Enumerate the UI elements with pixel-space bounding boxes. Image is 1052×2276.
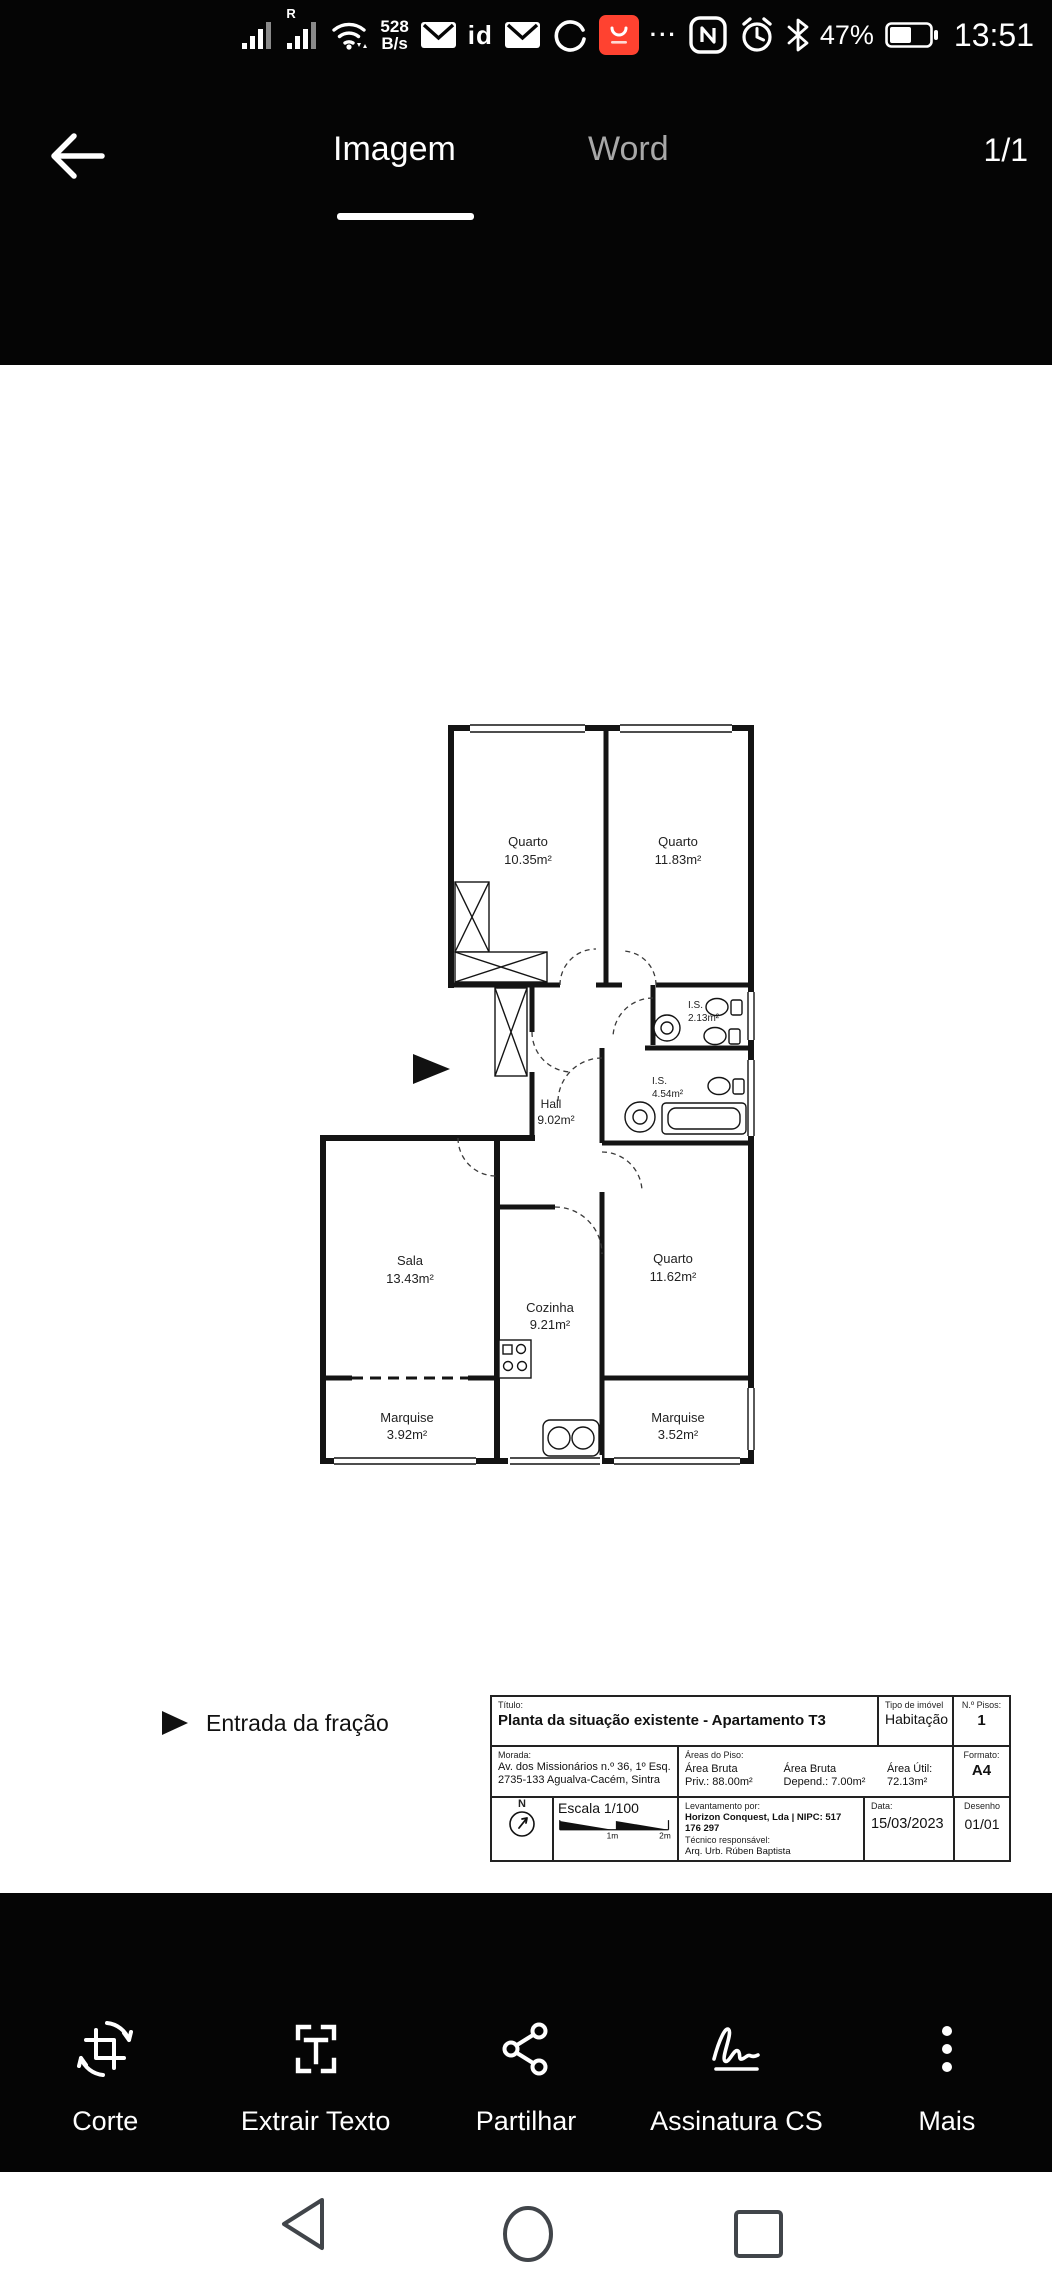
room-area: 3.52m² bbox=[658, 1427, 699, 1442]
room-label: Marquise bbox=[651, 1410, 704, 1425]
nfc-icon bbox=[689, 16, 727, 54]
carrier-indicator: R bbox=[286, 6, 295, 21]
back-button[interactable] bbox=[46, 130, 108, 187]
area-bruta-priv-l2: Priv.: 88.00m² bbox=[685, 1776, 774, 1789]
data-value: 15/03/2023 bbox=[871, 1816, 947, 1832]
entrance-legend-label: Entrada da fração bbox=[206, 1710, 389, 1737]
formato-label: Formato: bbox=[960, 1750, 1003, 1761]
room-area: 11.83m² bbox=[655, 852, 702, 867]
network-speed: 528 B/s bbox=[380, 18, 408, 52]
pisos-label: N.º Pisos: bbox=[960, 1700, 1003, 1711]
title-block: Título: Planta da situação existente - A… bbox=[490, 1695, 1011, 1862]
battery-percent: 47% bbox=[820, 20, 874, 51]
area-bruta-priv-l1: Área Bruta bbox=[685, 1763, 774, 1776]
room-label: Quarto bbox=[658, 834, 698, 849]
mail-icon bbox=[420, 21, 457, 49]
mail-icon-2 bbox=[504, 21, 541, 49]
desenho-value: 01/01 bbox=[961, 1816, 1003, 1832]
morada-line1: Av. dos Missionários n.º 36, 1º Esq. bbox=[498, 1761, 671, 1774]
entrance-triangle-icon bbox=[158, 1707, 190, 1739]
title-block-row-3: N Escala 1/100 1m 2m Levantamento por: bbox=[492, 1798, 1009, 1861]
north-label: N bbox=[493, 1799, 551, 1810]
more-vertical-icon bbox=[916, 2018, 978, 2080]
nav-home-button[interactable] bbox=[505, 2208, 551, 2260]
wardrobes bbox=[455, 882, 547, 1076]
nav-recents-button[interactable] bbox=[736, 2212, 781, 2256]
morada-line2: 2735-133 Agualva-Cacém, Sintra bbox=[498, 1774, 671, 1787]
page-indicator: 1/1 bbox=[984, 132, 1028, 169]
tecnico-value: Arq. Urb. Rúben Baptista bbox=[685, 1846, 857, 1858]
extract-text-icon bbox=[285, 2018, 347, 2080]
room-area: 9.02m² bbox=[537, 1113, 574, 1127]
app-screen: R 528 B/s id ··· 4 bbox=[0, 0, 1052, 2276]
share-label: Partilhar bbox=[476, 2106, 577, 2137]
desenho-label: Desenho bbox=[961, 1801, 1003, 1812]
wifi-icon bbox=[331, 19, 369, 51]
overflow-dots-icon: ··· bbox=[650, 22, 678, 48]
titulo-cell: Título: Planta da situação existente - A… bbox=[492, 1697, 879, 1745]
tab-word[interactable]: Word bbox=[588, 130, 669, 169]
escala-cell: Escala 1/100 1m 2m bbox=[554, 1798, 679, 1861]
levantamento-cell: Levantamento por: Horizon Conquest, Lda … bbox=[679, 1798, 865, 1861]
area-util-l1: Área Útil: bbox=[887, 1763, 946, 1776]
areas-cell: Áreas do Piso: Área Bruta Priv.: 88.00m²… bbox=[679, 1747, 954, 1795]
data-cell: Data: 15/03/2023 bbox=[865, 1798, 955, 1861]
areas-label: Áreas do Piso: bbox=[685, 1750, 946, 1761]
tecnico-label: Técnico responsável: bbox=[685, 1835, 857, 1846]
scale-2m-label: 2m bbox=[659, 1830, 671, 1839]
room-area: 4.54m² bbox=[652, 1089, 684, 1100]
room-label: Quarto bbox=[653, 1251, 693, 1266]
tipo-cell: Tipo de imóvel Habitação bbox=[879, 1697, 954, 1745]
room-area: 10.35m² bbox=[504, 852, 552, 867]
signature-icon bbox=[705, 2018, 767, 2080]
clock-time: 13:51 bbox=[954, 17, 1034, 54]
room-area: 13.43m² bbox=[386, 1271, 434, 1286]
header: Imagem Word 1/1 bbox=[0, 70, 1052, 365]
document-image[interactable]: Quarto 10.35m² Quarto 11.83m² I.S. 2.13m… bbox=[0, 365, 1052, 1893]
alarm-icon bbox=[738, 16, 776, 54]
morada-cell: Morada: Av. dos Missionários n.º 36, 1º … bbox=[492, 1747, 679, 1795]
status-bar: R 528 B/s id ··· 4 bbox=[0, 0, 1052, 70]
signature-button[interactable]: Assinatura CS bbox=[631, 2018, 841, 2137]
signal-r-icon: R bbox=[286, 20, 320, 50]
extract-text-label: Extrair Texto bbox=[241, 2106, 391, 2137]
room-area: 2.13m² bbox=[688, 1013, 720, 1024]
extract-text-button[interactable]: Extrair Texto bbox=[210, 2018, 420, 2137]
title-block-row-2: Morada: Av. dos Missionários n.º 36, 1º … bbox=[492, 1747, 1009, 1797]
area-bruta-dep-l1: Área Bruta bbox=[784, 1763, 877, 1776]
entrance-legend: Entrada da fração bbox=[158, 1707, 389, 1739]
room-label: I.S. bbox=[652, 1076, 667, 1087]
desenho-cell: Desenho 01/01 bbox=[955, 1798, 1009, 1861]
area-util-l2: 72.13m² bbox=[887, 1776, 946, 1789]
data-label: Data: bbox=[871, 1801, 947, 1812]
pisos-cell: N.º Pisos: 1 bbox=[954, 1697, 1009, 1745]
signature-label: Assinatura CS bbox=[650, 2106, 823, 2137]
sync-icon bbox=[552, 17, 588, 53]
aliexpress-icon bbox=[599, 15, 639, 55]
bottom-toolbar: Corte Extrair Texto Partilhar bbox=[0, 1985, 1052, 2170]
share-icon bbox=[495, 2018, 557, 2080]
id-notification-icon: id bbox=[468, 20, 493, 51]
android-nav-bar bbox=[0, 2172, 1052, 2276]
crop-button[interactable]: Corte bbox=[0, 2018, 210, 2137]
room-area: 3.92m² bbox=[387, 1427, 428, 1442]
tab-imagem[interactable]: Imagem bbox=[333, 130, 456, 169]
scale-bar: 1m 2m bbox=[558, 1816, 672, 1840]
crop-rotate-icon bbox=[74, 2018, 136, 2080]
formato-value: A4 bbox=[960, 1761, 1003, 1780]
room-area: 9.21m² bbox=[530, 1317, 571, 1332]
tipo-value: Habitação bbox=[885, 1711, 946, 1727]
crop-label: Corte bbox=[72, 2106, 138, 2137]
titulo-label: Título: bbox=[498, 1700, 871, 1711]
fixtures bbox=[499, 999, 746, 1457]
signal-icon bbox=[241, 20, 275, 50]
room-label: Cozinha bbox=[526, 1300, 574, 1315]
morada-label: Morada: bbox=[498, 1750, 671, 1761]
tipo-label: Tipo de imóvel bbox=[885, 1700, 946, 1711]
title-block-row-1: Título: Planta da situação existente - A… bbox=[492, 1697, 1009, 1747]
tab-imagem-underline bbox=[337, 213, 474, 220]
area-bruta-dep-l2: Depend.: 7.00m² bbox=[784, 1776, 877, 1789]
floorplan-drawing: Quarto 10.35m² Quarto 11.83m² I.S. 2.13m… bbox=[310, 720, 765, 1465]
room-label: Marquise bbox=[380, 1410, 433, 1425]
room-area: 11.62m² bbox=[650, 1269, 697, 1284]
more-button[interactable]: Mais bbox=[842, 2018, 1052, 2137]
more-label: Mais bbox=[918, 2106, 975, 2137]
levantamento-value: Horizon Conquest, Lda | NIPC: 517 176 29… bbox=[685, 1812, 857, 1835]
room-label: Sala bbox=[397, 1253, 424, 1268]
room-label: Hall bbox=[541, 1097, 562, 1111]
formato-cell: Formato: A4 bbox=[954, 1747, 1009, 1795]
room-label: I.S. bbox=[688, 1000, 703, 1011]
nav-back-button[interactable] bbox=[284, 2200, 322, 2248]
share-button[interactable]: Partilhar bbox=[421, 2018, 631, 2137]
titulo-value: Planta da situação existente - Apartamen… bbox=[498, 1711, 871, 1730]
bluetooth-icon bbox=[787, 18, 809, 52]
scale-1m-label: 1m bbox=[607, 1830, 619, 1839]
network-speed-unit: B/s bbox=[381, 34, 407, 53]
levantamento-label: Levantamento por: bbox=[685, 1801, 857, 1812]
entrance-arrow-icon bbox=[413, 1054, 450, 1084]
escala-value: Escala 1/100 bbox=[558, 1800, 673, 1816]
pisos-value: 1 bbox=[960, 1711, 1003, 1730]
compass-cell: N bbox=[492, 1798, 554, 1861]
compass-icon bbox=[507, 1810, 537, 1838]
room-label: Quarto bbox=[508, 834, 548, 849]
battery-icon bbox=[885, 21, 939, 49]
